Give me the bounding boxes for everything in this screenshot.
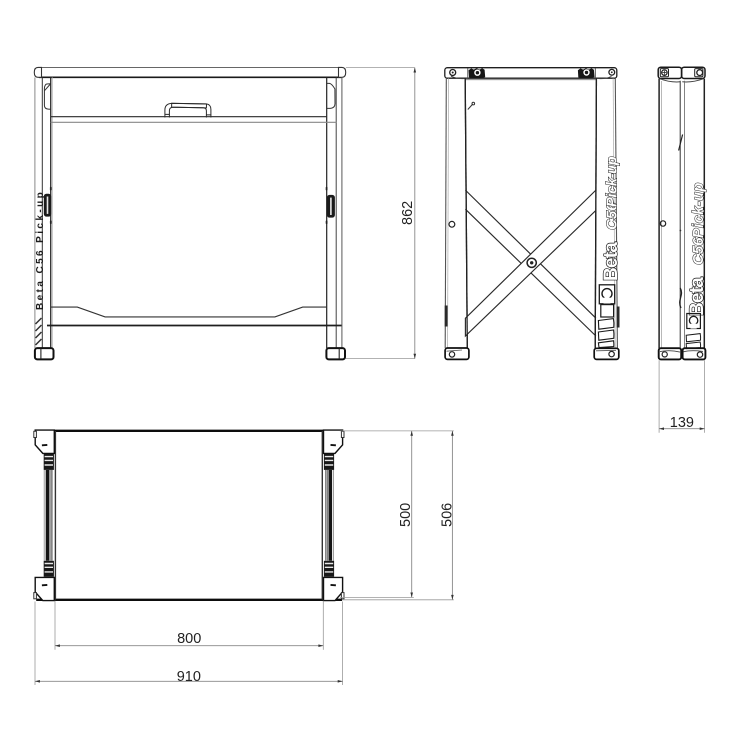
- svg-text:Beta: Beta: [687, 277, 708, 316]
- svg-text:Beta: Beta: [601, 242, 622, 281]
- svg-text:800: 800: [177, 631, 201, 647]
- svg-text:862: 862: [400, 201, 416, 225]
- svg-text:Pick-up: Pick-up: [691, 182, 707, 238]
- svg-text:Beta C56 Pick-up: Beta C56 Pick-up: [35, 190, 46, 310]
- svg-text:500: 500: [398, 503, 414, 527]
- svg-text:C56: C56: [690, 237, 707, 265]
- svg-text:506: 506: [440, 503, 456, 527]
- svg-text:139: 139: [670, 415, 694, 431]
- svg-text:910: 910: [177, 669, 201, 685]
- svg-text:Pick-up: Pick-up: [605, 156, 621, 207]
